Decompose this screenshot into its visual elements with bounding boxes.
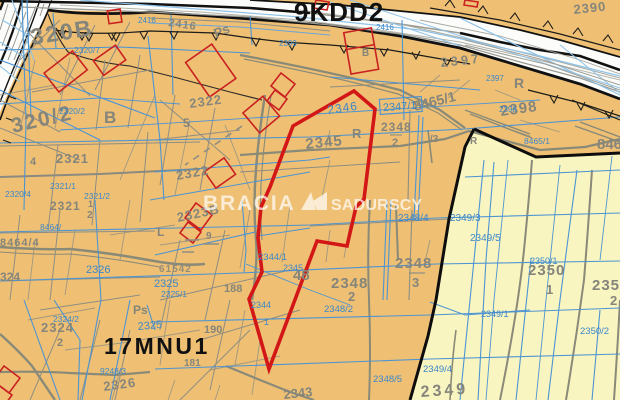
svg-text:1: 1 — [546, 282, 553, 297]
svg-text:8465/1: 8465/1 — [524, 136, 550, 146]
svg-text:2320/7: 2320/7 — [74, 45, 100, 55]
svg-text:2348/2: 2348/2 — [324, 304, 353, 315]
svg-text:2349/1: 2349/1 — [481, 309, 509, 319]
svg-text:R: R — [470, 136, 478, 147]
svg-text:BRACIA: BRACIA — [203, 192, 295, 215]
svg-text:2324/2: 2324/2 — [53, 314, 79, 324]
svg-text:2: 2 — [610, 293, 617, 308]
svg-text:2347/1: 2347/1 — [383, 100, 417, 114]
svg-text:61542: 61542 — [159, 264, 192, 275]
svg-text:2349/5: 2349/5 — [470, 233, 501, 244]
svg-text:2321: 2321 — [50, 199, 81, 213]
svg-text:2: 2 — [87, 210, 93, 221]
svg-text:2349: 2349 — [420, 381, 469, 400]
svg-text:2320/2: 2320/2 — [59, 106, 85, 116]
svg-text:181: 181 — [184, 358, 201, 369]
svg-text:2343: 2343 — [283, 384, 313, 400]
svg-text:17MNU1: 17MNU1 — [104, 333, 210, 359]
svg-text:B: B — [362, 48, 369, 59]
svg-text:2416: 2416 — [138, 16, 156, 25]
svg-text:2348/5: 2348/5 — [373, 374, 402, 385]
svg-text:2397: 2397 — [486, 74, 504, 83]
svg-text:2349/3: 2349/3 — [450, 213, 481, 224]
svg-text:9KDD2: 9KDD2 — [294, 0, 384, 27]
svg-text:235: 235 — [592, 277, 620, 294]
svg-text:2: 2 — [392, 137, 398, 149]
svg-text:2321/1: 2321/1 — [50, 181, 76, 191]
svg-text:2320/4: 2320/4 — [5, 189, 31, 199]
svg-text:2348: 2348 — [395, 255, 432, 272]
svg-text:2325: 2325 — [137, 319, 162, 333]
svg-text:R: R — [352, 126, 362, 141]
svg-text:5: 5 — [183, 116, 190, 130]
svg-text:B: B — [104, 108, 116, 127]
svg-text:2349/4: 2349/4 — [423, 364, 452, 375]
svg-text:2399: 2399 — [279, 39, 297, 48]
svg-text:SADURSCY: SADURSCY — [331, 197, 423, 214]
svg-text:188: 188 — [224, 283, 242, 295]
svg-text:2325/1: 2325/1 — [161, 289, 187, 299]
svg-text:324: 324 — [0, 270, 20, 284]
svg-text:2321: 2321 — [56, 151, 89, 166]
svg-text:L: L — [157, 225, 164, 239]
svg-text:2321/2: 2321/2 — [84, 191, 110, 201]
svg-text:/3: /3 — [430, 134, 439, 145]
svg-text:2350/1: 2350/1 — [530, 256, 558, 266]
svg-text:2: 2 — [348, 289, 355, 304]
svg-text:846: 846 — [597, 136, 620, 153]
svg-text:8464/4: 8464/4 — [0, 237, 40, 249]
svg-text:2348/4: 2348/4 — [398, 213, 429, 224]
svg-text:8464/: 8464/ — [40, 222, 62, 232]
svg-text:2350/2: 2350/2 — [580, 326, 609, 337]
svg-text:2345: 2345 — [283, 263, 303, 273]
svg-text:9: 9 — [206, 231, 212, 242]
svg-text:R: R — [514, 75, 524, 91]
svg-text:2348: 2348 — [381, 120, 412, 134]
svg-text:4: 4 — [30, 156, 37, 168]
svg-text:2344: 2344 — [251, 300, 271, 310]
svg-text:2326: 2326 — [86, 264, 110, 276]
svg-text:9248/3: 9248/3 — [100, 366, 126, 376]
svg-text:Ps: Ps — [133, 303, 148, 317]
svg-text:2398: 2398 — [499, 105, 517, 114]
svg-text:1: 1 — [264, 317, 269, 327]
svg-text:2: 2 — [57, 337, 63, 349]
svg-text:3: 3 — [412, 275, 419, 290]
svg-text:2344/1: 2344/1 — [258, 252, 287, 263]
